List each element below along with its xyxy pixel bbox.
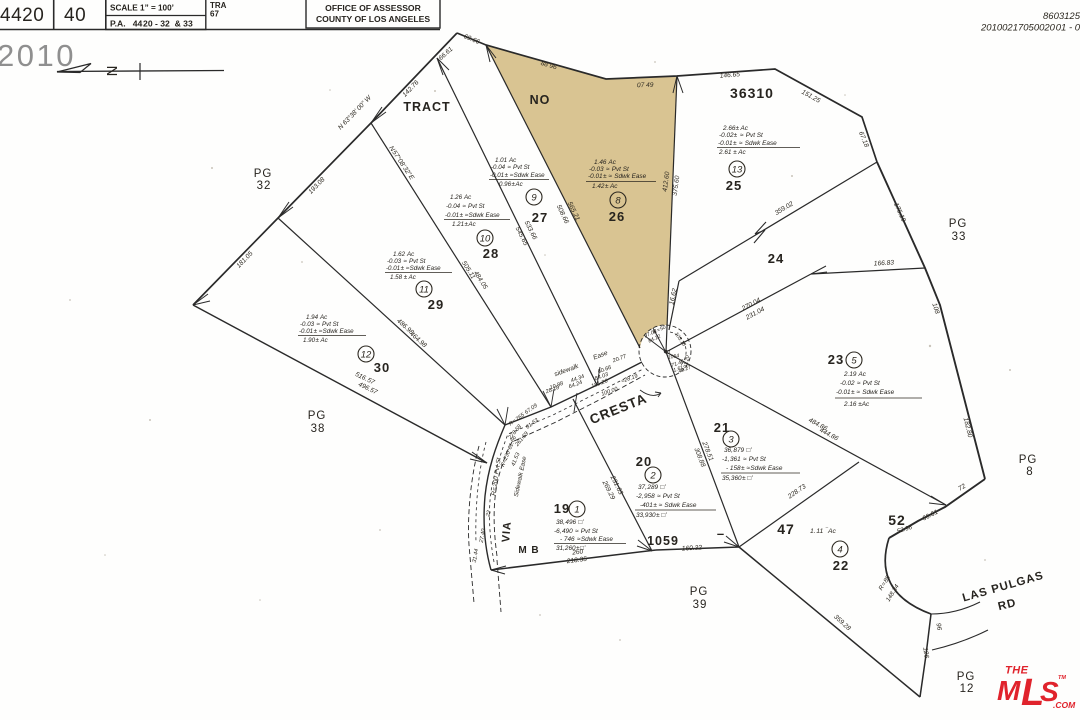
svg-text:NO: NO [530,93,551,107]
svg-text:27: 27 [532,210,548,225]
svg-text:2010: 2010 [0,38,76,73]
svg-text:25: 25 [726,178,742,193]
svg-text:-0.02 ≈ Pvt St: -0.02 ≈ Pvt St [840,380,880,387]
svg-text:-0.01 ± ≈ Sdwk Ease: -0.01 ± ≈ Sdwk Ease [386,265,441,272]
svg-text:33,930 ± □’: 33,930 ± □’ [636,512,667,519]
svg-text:P.A. 44 20 - 32 & 33: P.A. 44 20 - 32 & 33 [110,19,193,29]
svg-text:-0.03 ≈ Pvt St: -0.03 ≈ Pvt St [589,166,629,173]
svg-text:2.66± Ac: 2.66± Ac [722,125,749,132]
svg-text:-1, 361 ≈ Pvt St: -1, 361 ≈ Pvt St [722,456,766,463]
svg-text:COUNTY OF LOS ANGELES: COUNTY OF LOS ANGELES [316,14,430,24]
svg-text:1.01 Ac: 1.01 Ac [495,157,517,164]
svg-text:PG: PG [949,218,968,230]
svg-text:37, 289 □’: 37, 289 □’ [638,484,666,491]
svg-text:- 158 ± ≈ Sdwk Ease: - 158 ± ≈ Sdwk Ease [726,465,783,472]
svg-text:12: 12 [960,683,975,695]
svg-text:SCALE 1” = 100’: SCALE 1” = 100’ [110,4,174,13]
svg-text:PG: PG [254,168,273,180]
svg-text:160.32: 160.32 [682,544,703,552]
svg-text:32: 32 [257,180,272,192]
svg-text:1.58 ± Ac: 1.58 ± Ac [390,274,417,281]
svg-text:1059: 1059 [647,534,679,548]
svg-text:-0.01 ± ≈ Sdwk Ease: -0.01 ± ≈ Sdwk Ease [836,389,895,396]
svg-text:-0.02± ≈ Pvt St: -0.02± ≈ Pvt St [719,132,763,139]
svg-text:2.61 ± Ac: 2.61 ± Ac [718,149,747,156]
svg-text:1.42 ± Ac: 1.42 ± Ac [592,183,618,190]
svg-text:10: 10 [480,234,491,245]
svg-text:36310: 36310 [730,85,774,101]
svg-text:-0.01 ± ≈ Sdwk Ease: -0.01 ± ≈ Sdwk Ease [718,140,777,147]
svg-text:11: 11 [419,285,429,296]
svg-text:19: 19 [554,501,570,516]
svg-text:29: 29 [428,297,444,312]
svg-text:1.62 Ac: 1.62 Ac [393,251,415,258]
svg-text:28: 28 [483,246,499,261]
svg-text:5: 5 [851,356,857,367]
svg-text:1.21 ± Ac: 1.21 ± Ac [452,221,477,228]
svg-text:1.90 ± Ac: 1.90 ± Ac [303,337,329,344]
svg-text:13: 13 [732,165,743,176]
svg-text:-0.01 ± ≈ Sdwk Ease: -0.01 ± ≈ Sdwk Ease [588,173,647,180]
svg-text:–: – [717,526,725,541]
svg-text:2.16 ±Ac: 2.16 ±Ac [843,401,870,408]
svg-text:-0.03 ≈ Pvt St: -0.03 ≈ Pvt St [387,258,426,265]
svg-text:0.96 ± Ac: 0.96 ± Ac [499,181,524,188]
svg-text:20: 20 [636,454,652,469]
svg-text:67: 67 [210,10,219,19]
svg-text:9: 9 [531,193,537,204]
svg-text:22: 22 [833,558,849,573]
svg-text:-0.03 ≈ Pvt St: -0.03 ≈ Pvt St [300,321,339,328]
svg-text:4420: 4420 [0,5,44,26]
svg-text:2: 2 [649,471,656,482]
svg-text:-6, 490 ≈ Pvt St: -6, 490 ≈ Pvt St [554,528,598,535]
svg-text:-0.01 ± ≈ Sdwk Ease: -0.01 ± ≈ Sdwk Ease [445,212,500,219]
svg-text:PG: PG [1019,454,1038,466]
svg-text:38, 496 □’: 38, 496 □’ [556,519,584,526]
svg-text:36, 879 □’: 36, 879 □’ [724,447,752,454]
svg-text:2.19 Ac: 2.19 Ac [843,371,867,378]
svg-text:-0.04 ≈ Pvt St: -0.04 ≈ Pvt St [446,203,485,210]
svg-text:26: 26 [609,209,625,224]
svg-text:38: 38 [311,423,326,435]
svg-text:M B: M B [518,545,539,556]
svg-text:-2, 958 ≈ Pvt St: -2, 958 ≈ Pvt St [636,493,680,500]
svg-text:47: 47 [777,521,795,537]
svg-text:M: M [997,675,1021,706]
svg-text:-0.01 ± ≈ Sdwk Ease: -0.01 ± ≈ Sdwk Ease [299,328,354,335]
svg-text:1.46 Ac: 1.46 Ac [594,159,617,166]
svg-text:-401 ± ≈ Sdwk Ease: -401 ± ≈ Sdwk Ease [640,502,697,509]
svg-text:24: 24 [768,251,784,266]
svg-text:8603125: 8603125 [1043,11,1080,22]
svg-text:.COM: .COM [1053,700,1076,710]
svg-text:07 49: 07 49 [636,82,654,90]
svg-text:4: 4 [837,545,842,556]
svg-text:N: N [104,66,121,77]
svg-text:8: 8 [615,196,621,207]
svg-text:1: 1 [574,505,579,516]
svg-text:8: 8 [1026,466,1033,478]
svg-text:PG: PG [690,586,709,598]
svg-text:TM: TM [1058,675,1066,681]
svg-text:39: 39 [693,599,708,611]
svg-text:PG: PG [957,671,976,683]
svg-text:OFFICE OF ASSESSOR: OFFICE OF ASSESSOR [325,3,421,13]
svg-text:PG: PG [308,410,327,422]
svg-text:1.94 Ac: 1.94 Ac [306,314,328,321]
svg-text:23: 23 [828,352,844,367]
svg-text:TRACT: TRACT [403,100,450,114]
svg-text:20100217050020 01 - 0: 20100217050020 01 - 0 [980,23,1080,34]
svg-text:166.83: 166.83 [874,259,895,267]
svg-text:- 746 ≈ Sdwk Ease: - 746 ≈ Sdwk Ease [560,536,613,543]
svg-text:1. 11 ‾Ac: 1. 11 ‾Ac [810,527,837,535]
svg-text:30: 30 [374,360,390,375]
svg-text:3: 3 [728,435,734,446]
svg-text:-0.01 ± ≈ Sdwk Ease: -0.01 ± ≈ Sdwk Ease [490,172,545,179]
svg-text:33: 33 [952,231,967,243]
svg-text:40: 40 [64,5,86,26]
svg-text:1.26 Ac: 1.26 Ac [450,194,472,201]
svg-text:21: 21 [714,420,730,435]
svg-text:35,360 ± □’: 35,360 ± □’ [722,475,753,482]
svg-text:-0.04 ≈ Pvt St: -0.04 ≈ Pvt St [491,164,530,171]
svg-text:VIA: VIA [500,521,514,543]
svg-text:12: 12 [361,350,372,361]
